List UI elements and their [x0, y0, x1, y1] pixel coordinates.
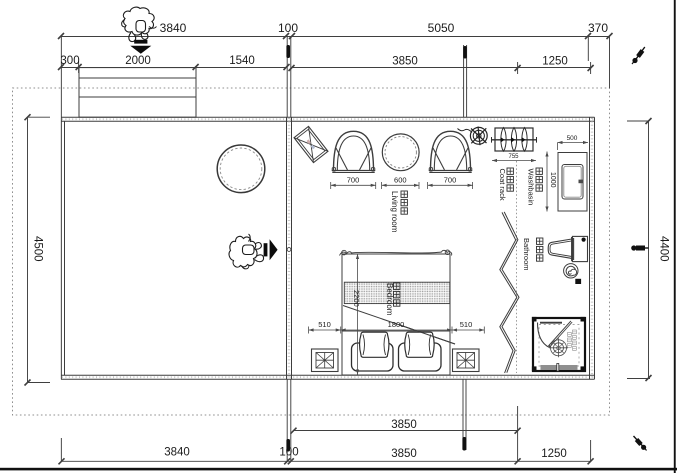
svg-text:370: 370 [588, 21, 608, 35]
svg-text:1250: 1250 [542, 56, 568, 68]
svg-text:1250: 1250 [541, 448, 567, 460]
svg-text:4500: 4500 [32, 236, 44, 262]
svg-text:510: 510 [460, 320, 473, 329]
svg-text:100: 100 [278, 21, 298, 35]
svg-text:Coat rack: Coat rack [498, 169, 507, 201]
svg-text:2000: 2000 [125, 55, 151, 67]
svg-text:Living room: Living room [390, 191, 399, 233]
svg-text:3850: 3850 [391, 419, 417, 431]
svg-text:Bedroom: Bedroom [385, 283, 394, 316]
svg-text:600: 600 [394, 176, 407, 185]
svg-text:700: 700 [347, 176, 360, 185]
svg-text:300: 300 [60, 55, 79, 67]
svg-text:500: 500 [567, 135, 578, 142]
svg-text:700: 700 [444, 176, 457, 185]
svg-text:755: 755 [508, 154, 519, 160]
svg-text:1540: 1540 [229, 55, 255, 67]
svg-text:3840: 3840 [160, 21, 187, 35]
svg-text:3840: 3840 [164, 447, 190, 459]
svg-text:3850: 3850 [391, 448, 417, 460]
svg-text:3850: 3850 [392, 56, 418, 68]
svg-text:510: 510 [318, 320, 331, 329]
svg-text:1000: 1000 [549, 172, 556, 188]
svg-text:2200: 2200 [352, 290, 361, 307]
svg-text:Bathroom: Bathroom [522, 238, 531, 271]
svg-text:5050: 5050 [428, 21, 455, 35]
svg-text:1800: 1800 [388, 320, 405, 329]
svg-text:Washbasin: Washbasin [527, 169, 536, 206]
svg-text:4400: 4400 [658, 236, 670, 262]
